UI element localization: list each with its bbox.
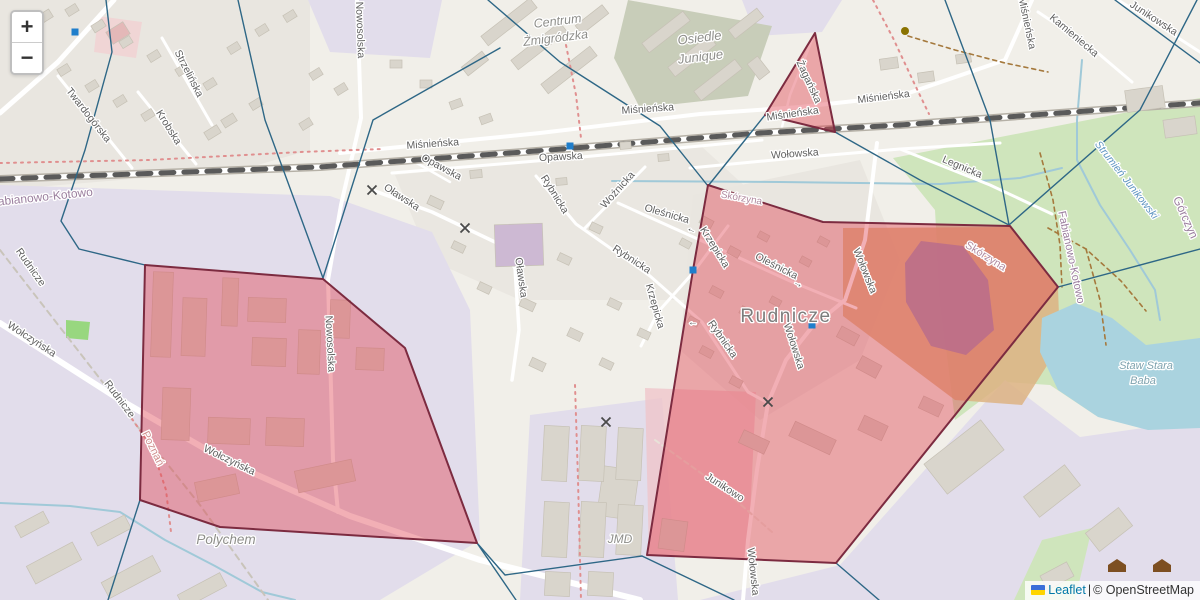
poi-dot-icon bbox=[901, 27, 909, 35]
blue-square-marker bbox=[72, 29, 79, 36]
zoom-out-button[interactable]: − bbox=[12, 43, 42, 73]
building bbox=[449, 98, 463, 110]
blue-square-marker bbox=[690, 267, 697, 274]
map-label: Miśnieńska bbox=[621, 101, 674, 117]
building bbox=[658, 154, 670, 162]
map-label: Miśnieńska bbox=[857, 88, 911, 106]
building bbox=[955, 53, 971, 64]
landuse-lavender-top-1 bbox=[308, 0, 442, 58]
building bbox=[461, 51, 488, 76]
attribution-separator: | bbox=[1086, 583, 1093, 597]
mesh-line bbox=[477, 543, 516, 600]
building bbox=[479, 113, 493, 125]
building bbox=[917, 71, 934, 83]
building bbox=[567, 327, 583, 341]
building bbox=[542, 425, 570, 481]
map-label: Rudnicze bbox=[740, 306, 831, 327]
building bbox=[616, 427, 644, 480]
building bbox=[620, 142, 632, 150]
mesh-line bbox=[1115, 0, 1200, 63]
map-label: Nowosolska bbox=[353, 1, 367, 58]
mesh-line bbox=[708, 115, 765, 186]
ukraine-flag-icon bbox=[1031, 585, 1045, 595]
building bbox=[390, 60, 402, 68]
map-label: Miśnieńska bbox=[406, 136, 459, 152]
building bbox=[879, 57, 898, 70]
building bbox=[599, 358, 614, 371]
building bbox=[470, 169, 483, 178]
building bbox=[579, 501, 607, 557]
map-label: Junikowska bbox=[1128, 0, 1180, 38]
building bbox=[334, 82, 348, 95]
map-label: Żmigródzka bbox=[521, 27, 589, 49]
map-label: → bbox=[687, 319, 698, 331]
map-label: Staw Stara bbox=[1119, 360, 1173, 372]
zoom-in-button[interactable]: + bbox=[12, 12, 42, 43]
map-label: Wołowska bbox=[771, 146, 820, 161]
building bbox=[542, 501, 570, 557]
building bbox=[579, 425, 607, 481]
landuse-green-small-west bbox=[66, 320, 90, 340]
building bbox=[587, 571, 613, 596]
building bbox=[309, 67, 323, 80]
blue-square-marker bbox=[567, 143, 574, 150]
attribution-bar: Leaflet|© OpenStreetMap bbox=[1025, 581, 1200, 600]
building bbox=[544, 571, 570, 596]
openstreetmap-link[interactable]: © OpenStreetMap bbox=[1093, 583, 1194, 597]
leaflet-link[interactable]: Leaflet bbox=[1048, 583, 1086, 597]
map-canvas[interactable]: TwardogórskaStrzelińskaKrobskaNowosolska… bbox=[0, 0, 1200, 600]
map-label: Opawska bbox=[539, 150, 583, 164]
building bbox=[556, 178, 568, 186]
map-label: Kamieniecka bbox=[1047, 12, 1101, 60]
map-label: Polychem bbox=[196, 532, 255, 547]
building bbox=[529, 357, 546, 371]
map-viewport[interactable]: TwardogórskaStrzelińskaKrobskaNowosolska… bbox=[0, 0, 1200, 600]
map-label: Baba bbox=[1130, 375, 1156, 387]
building bbox=[616, 504, 644, 555]
zoom-control: + − bbox=[10, 10, 44, 75]
map-label: JMD bbox=[607, 532, 633, 546]
